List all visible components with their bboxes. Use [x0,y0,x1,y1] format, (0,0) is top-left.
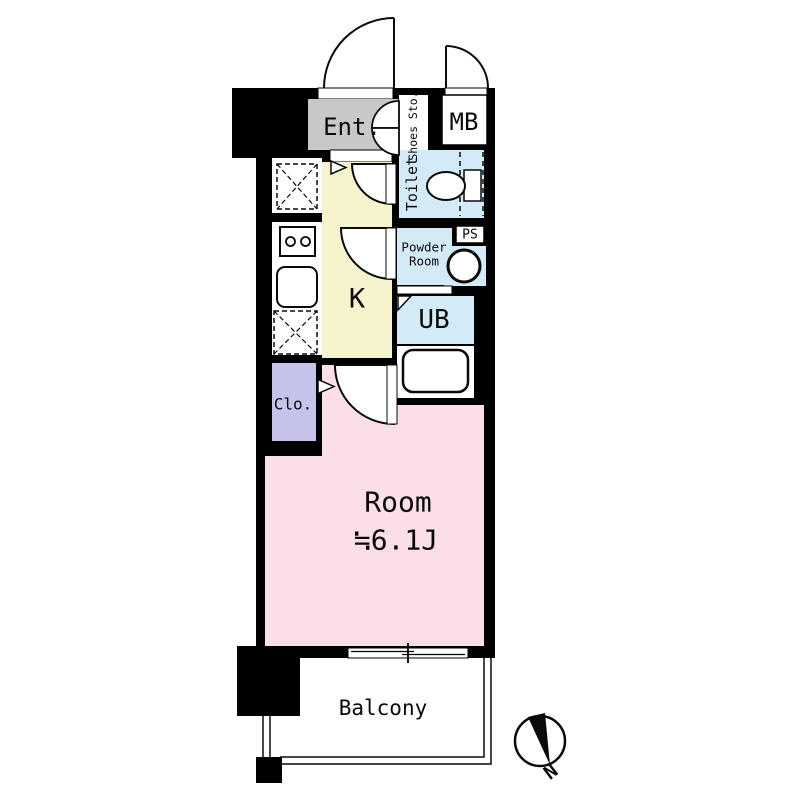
washer-space-icon [274,311,317,354]
floor-plan-page: N Ent. Shoes Sto. MB Toilet Powder Room … [0,0,800,800]
washbasin-icon [448,250,480,282]
closet-label: Clo. [274,395,313,414]
fridge-space-icon [277,164,317,209]
powder-room-label-line1: Powder [401,240,447,255]
pipe-space-label: PS [462,228,478,243]
shoe-storage-label: Shoes Sto. [406,91,420,160]
balcony-label: Balcony [339,696,428,720]
unit-bath-door-strip [397,286,452,294]
wall-top-left-column [232,88,308,158]
stove-icon [280,227,315,256]
entrance-label: Ent. [323,113,381,141]
entrance-door-opening [318,88,393,99]
unit-bath-label: UB [418,305,449,335]
toilet-label: Toilet [403,157,421,211]
entrance-kitchen-opening [330,150,392,162]
bathtub-icon [403,350,468,392]
kitchen-label: K [349,284,366,315]
wall-bottom-left-column [237,646,300,716]
wall-balcony-post [256,757,282,783]
powder-room-label-line2: Room [409,254,439,269]
main-room-size-label: ≒6.1J [354,524,438,557]
main-room-label: Room [364,486,431,519]
sink-icon [277,267,317,307]
meter-box-label: MB [450,108,479,136]
floor-plan-svg: N Ent. Shoes Sto. MB Toilet Powder Room … [0,0,800,800]
